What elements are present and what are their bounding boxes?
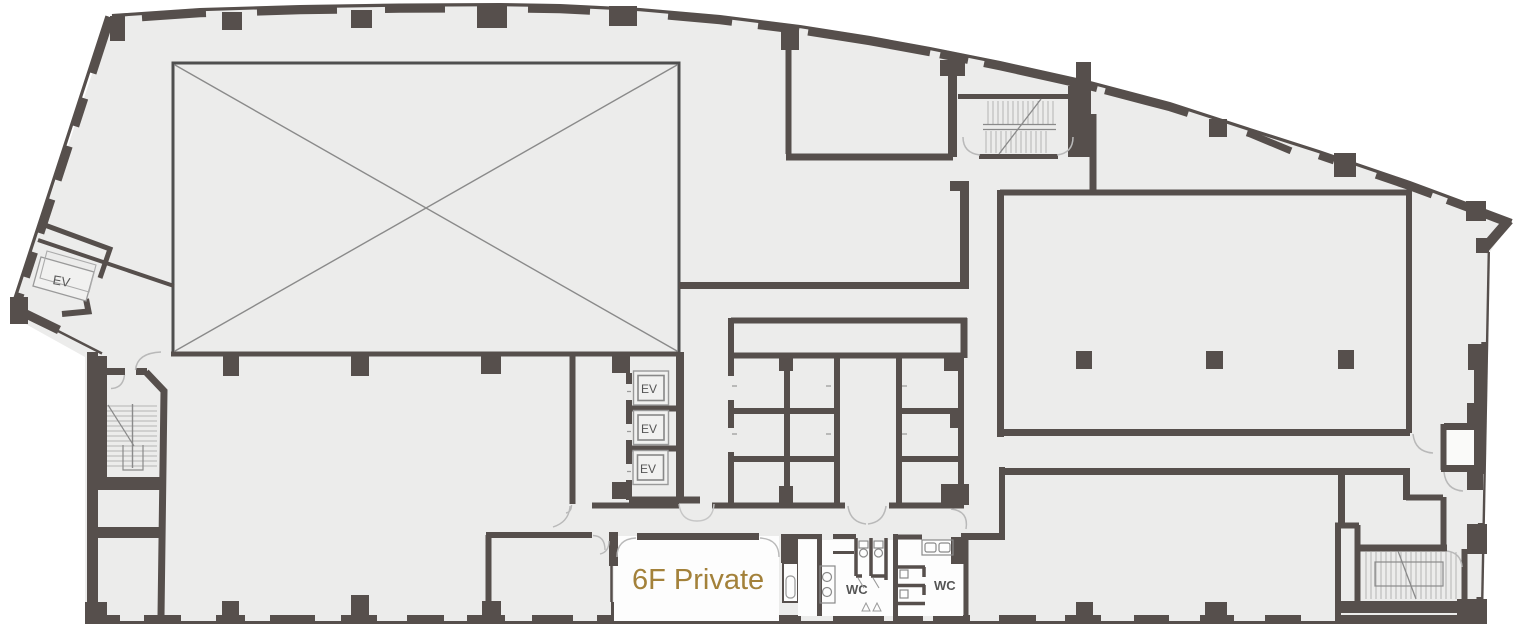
svg-text:WC: WC: [846, 582, 868, 597]
svg-text:EV: EV: [52, 272, 72, 290]
svg-text:EV: EV: [640, 462, 656, 476]
svg-text:WC: WC: [934, 578, 956, 593]
svg-text:6F Private: 6F Private: [632, 564, 764, 596]
svg-text:EV: EV: [641, 422, 657, 436]
svg-text:EV: EV: [641, 382, 657, 396]
